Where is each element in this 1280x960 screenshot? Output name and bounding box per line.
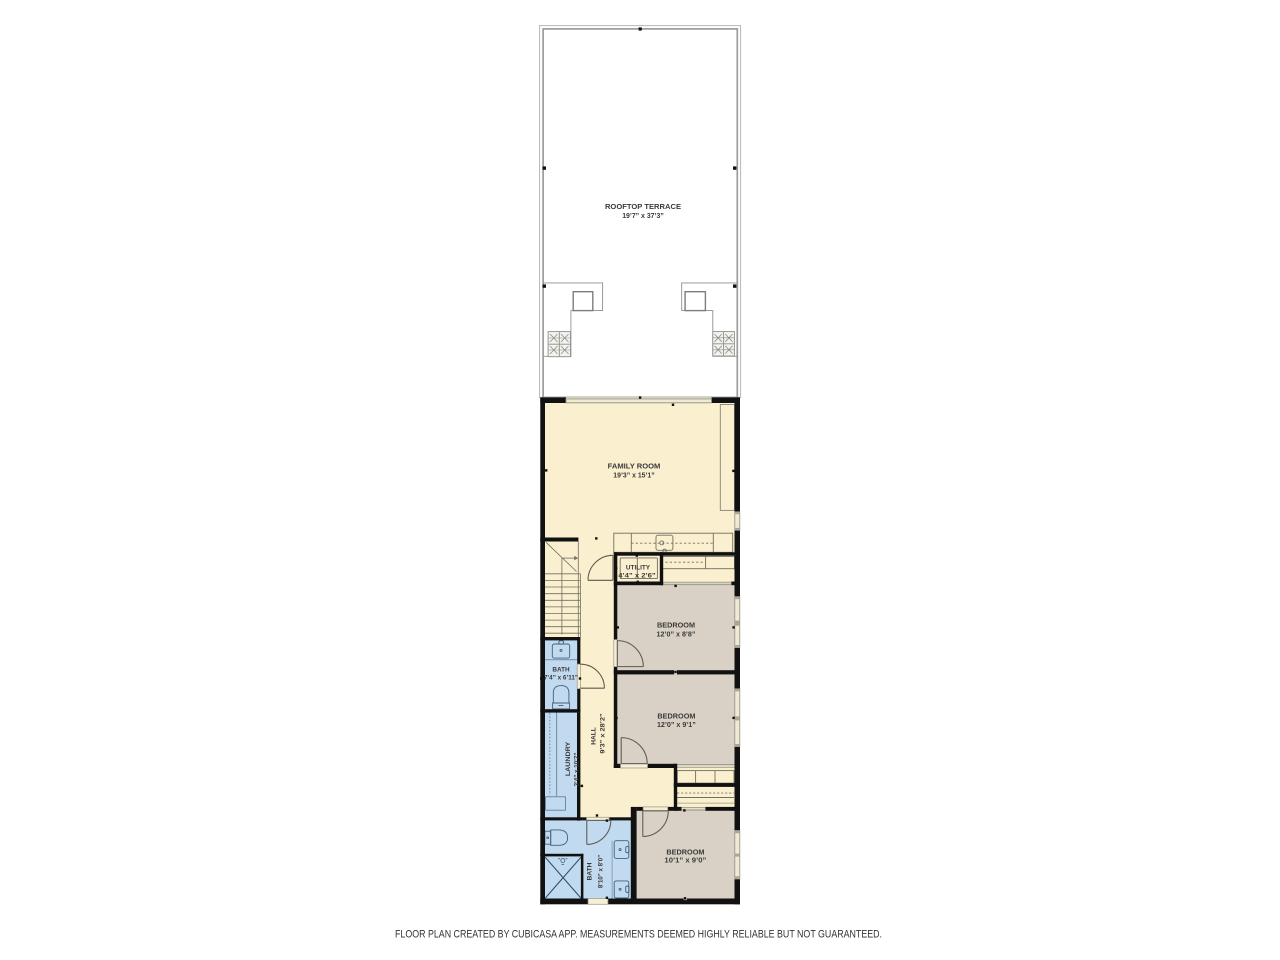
svg-text:9’3” x 28’2”: 9’3” x 28’2” [600, 713, 607, 753]
svg-text:12’0” x 9’1”: 12’0” x 9’1” [657, 720, 696, 729]
svg-text:UTILITY: UTILITY [626, 565, 651, 572]
svg-text:BATH: BATH [587, 862, 594, 880]
svg-text:4’4” x 2’6”: 4’4” x 2’6” [618, 572, 656, 579]
svg-text:FAMILY ROOM: FAMILY ROOM [608, 462, 661, 471]
svg-text:7’4” x 6’11”: 7’4” x 6’11” [544, 675, 578, 682]
svg-text:3’4” x 10’7”: 3’4” x 10’7” [574, 753, 581, 787]
svg-text:12’0” x 8’8”: 12’0” x 8’8” [657, 629, 696, 638]
svg-text:LAUNDRY: LAUNDRY [565, 741, 572, 776]
svg-text:10’1” x 9’0”: 10’1” x 9’0” [664, 856, 706, 865]
svg-text:FLOOR PLAN CREATED BY CUBICASA: FLOOR PLAN CREATED BY CUBICASA APP. MEAS… [395, 929, 882, 941]
svg-text:19’3” x 15’1”: 19’3” x 15’1” [613, 470, 655, 479]
svg-text:19’7” x 37’3”: 19’7” x 37’3” [622, 211, 664, 220]
svg-text:ROOFTOP TERRACE: ROOFTOP TERRACE [605, 202, 681, 211]
svg-text:8’10” x 8’0”: 8’10” x 8’0” [598, 855, 605, 888]
svg-text:HALL: HALL [591, 727, 598, 745]
svg-text:BATH: BATH [552, 667, 570, 674]
